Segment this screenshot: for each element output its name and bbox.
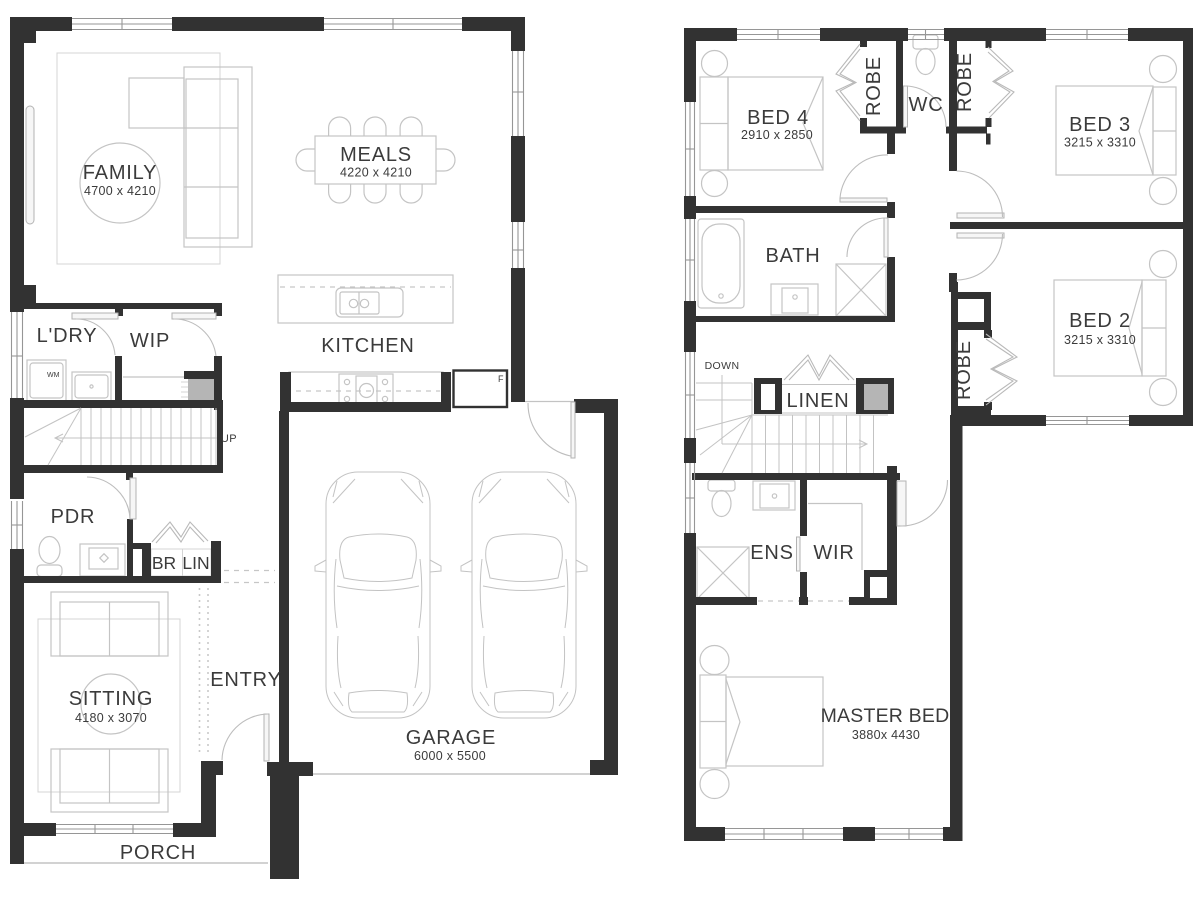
svg-text:LIN: LIN — [182, 553, 209, 573]
svg-text:4220 x 4210: 4220 x 4210 — [340, 166, 412, 180]
svg-text:3215 x 3310: 3215 x 3310 — [1064, 136, 1136, 150]
svg-text:BED 4: BED 4 — [747, 107, 809, 129]
svg-text:KITCHEN: KITCHEN — [321, 335, 414, 357]
svg-text:PDR: PDR — [51, 506, 96, 528]
svg-text:WM: WM — [47, 372, 60, 379]
svg-text:ROBE: ROBE — [863, 56, 885, 116]
svg-text:MASTER BED: MASTER BED — [821, 705, 950, 727]
svg-text:PORCH: PORCH — [120, 842, 196, 864]
svg-text:BATH: BATH — [765, 245, 820, 267]
svg-text:WIP: WIP — [130, 330, 170, 352]
svg-text:BED 3: BED 3 — [1069, 114, 1131, 136]
svg-text:6000 x 5500: 6000 x 5500 — [414, 749, 486, 763]
svg-text:ENS: ENS — [750, 542, 794, 564]
svg-text:WC: WC — [909, 94, 944, 116]
svg-text:DOWN: DOWN — [705, 360, 740, 372]
svg-text:F: F — [498, 374, 504, 384]
svg-text:2910 x 2850: 2910 x 2850 — [741, 128, 813, 142]
svg-text:GARAGE: GARAGE — [406, 727, 496, 749]
svg-text:LINEN: LINEN — [787, 390, 850, 412]
svg-text:ENTRY: ENTRY — [210, 669, 281, 691]
svg-text:BR: BR — [152, 553, 176, 573]
svg-text:MEALS: MEALS — [340, 144, 412, 166]
svg-text:4700 x 4210: 4700 x 4210 — [84, 184, 156, 198]
svg-text:BED 2: BED 2 — [1069, 310, 1131, 332]
svg-text:3215 x 3310: 3215 x 3310 — [1064, 333, 1136, 347]
svg-text:WIR: WIR — [813, 542, 854, 564]
svg-text:L'DRY: L'DRY — [37, 325, 98, 347]
svg-text:ROBE: ROBE — [953, 340, 975, 400]
svg-text:4180 x 3070: 4180 x 3070 — [75, 711, 147, 725]
svg-text:FAMILY: FAMILY — [83, 162, 157, 184]
svg-text:3880x 4430: 3880x 4430 — [852, 728, 920, 742]
svg-text:SITTING: SITTING — [69, 688, 154, 710]
svg-text:ROBE: ROBE — [954, 52, 976, 112]
svg-text:UP: UP — [221, 433, 237, 445]
